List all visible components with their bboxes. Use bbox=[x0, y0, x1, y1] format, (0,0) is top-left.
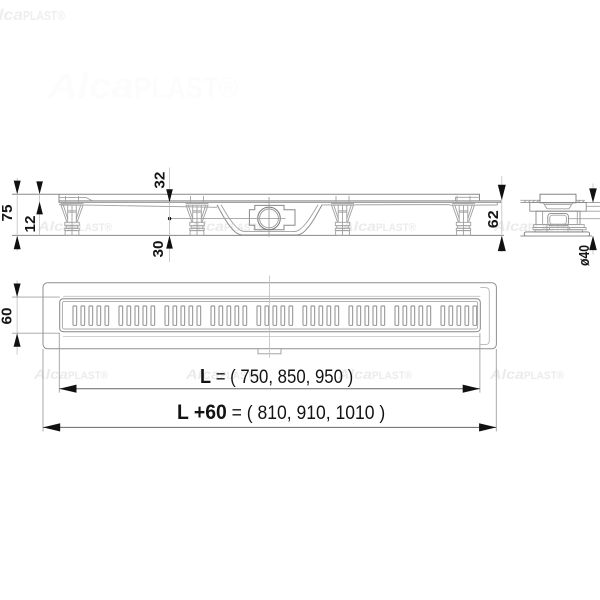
svg-text:PLAST®: PLAST® bbox=[68, 370, 108, 382]
svg-text:30: 30 bbox=[150, 241, 167, 258]
svg-text:PLAST®: PLAST® bbox=[372, 370, 412, 382]
svg-text:ø40: ø40 bbox=[576, 245, 593, 266]
svg-text:Alca: Alca bbox=[189, 219, 225, 234]
svg-text:PLAST®: PLAST® bbox=[134, 72, 238, 105]
svg-text:32: 32 bbox=[152, 172, 169, 189]
svg-text:Alca: Alca bbox=[47, 65, 134, 106]
svg-text:Alca: Alca bbox=[341, 219, 377, 234]
svg-text:PLAST®: PLAST® bbox=[23, 8, 65, 23]
svg-text:PLAST®: PLAST® bbox=[376, 222, 416, 234]
svg-text:PLAST®: PLAST® bbox=[524, 370, 564, 382]
svg-text:60: 60 bbox=[0, 308, 15, 325]
svg-text:Alca: Alca bbox=[489, 367, 525, 382]
svg-text:62: 62 bbox=[485, 210, 502, 228]
svg-text:L = ( 750, 850, 950 ): L = ( 750, 850, 950 ) bbox=[200, 365, 353, 388]
svg-text:Alca: Alca bbox=[0, 7, 23, 24]
svg-text:Alca: Alca bbox=[37, 219, 73, 234]
svg-text:12: 12 bbox=[22, 216, 39, 233]
svg-text:75: 75 bbox=[0, 205, 16, 222]
svg-text:Alca: Alca bbox=[33, 367, 69, 382]
svg-text:L +60 = ( 810, 910, 1010 ): L +60 = ( 810, 910, 1010 ) bbox=[177, 401, 385, 424]
svg-text:PLAST®: PLAST® bbox=[224, 222, 264, 234]
